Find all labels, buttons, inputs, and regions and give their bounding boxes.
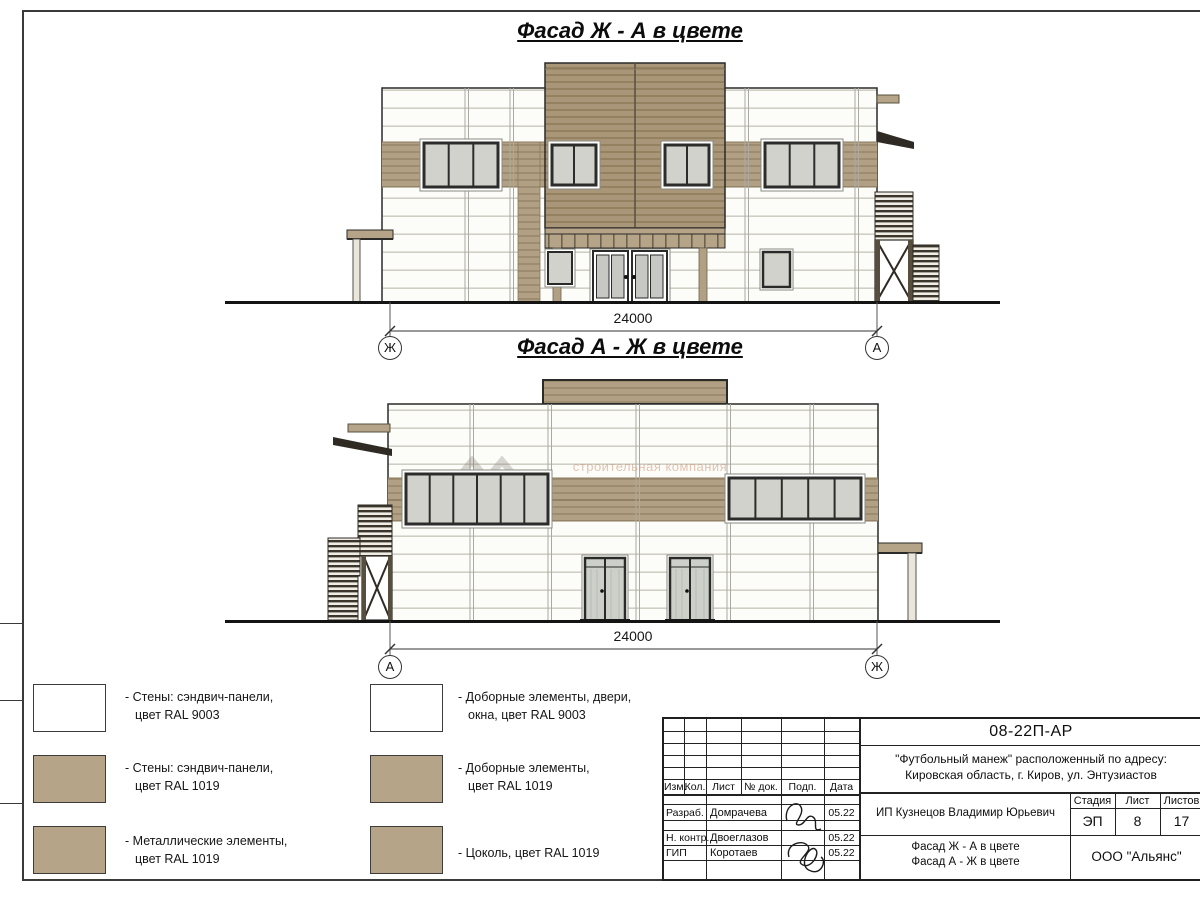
tb-col-kol: Кол.: [684, 781, 706, 793]
legend-item: - Стены: сэндвич-панели,цвет RAL 1019: [125, 760, 273, 795]
legend-swatch-ral1019: [33, 755, 106, 803]
legend-item: - Металлические элементы,цвет RAL 1019: [125, 833, 287, 868]
tb-stage-value: ЭП: [1070, 813, 1115, 829]
facade2-dimension: 24000: [573, 628, 693, 644]
facade2-drawing: [210, 375, 1010, 662]
tb-sheet-value: 8: [1115, 813, 1160, 829]
legend-swatch-ral9003: [33, 684, 106, 732]
legend-swatch-ral9003: [370, 684, 443, 732]
tb-role: Разраб.: [666, 807, 708, 819]
tb-name: Двоеглазов: [710, 832, 780, 844]
tb-col-izm: Изм.: [664, 781, 684, 793]
tb-name: Домрачева: [710, 807, 780, 819]
tb-sheets-label: Листов: [1160, 795, 1200, 807]
tb-project-line1: "Футбольный манеж" расположенный по адре…: [859, 752, 1200, 766]
facade1-title: Фасад Ж - А в цвете: [420, 18, 840, 44]
facade1-axis-left: Ж: [378, 336, 402, 360]
legend-item: - Стены: сэндвич-панели,цвет RAL 9003: [125, 689, 273, 724]
frame-margin-tick: [0, 623, 22, 624]
legend-item: - Цоколь, цвет RAL 1019: [458, 845, 599, 863]
facade1-axis-right: А: [865, 336, 889, 360]
watermark-text: строительная компания: [555, 459, 745, 474]
drawing-sheet: Фасад Ж - А в цвете Фасад А - Ж в цвете: [0, 0, 1200, 900]
facade2-title: Фасад А - Ж в цвете: [420, 334, 840, 360]
tb-name: Коротаев: [710, 847, 780, 859]
facade2-axis-right: Ж: [865, 655, 889, 679]
frame-left: [22, 10, 24, 881]
legend-swatch-ral1019: [370, 755, 443, 803]
tb-stage-label: Стадия: [1070, 795, 1115, 807]
frame-margin-tick: [0, 700, 22, 701]
frame-top: [22, 10, 1200, 12]
tb-role: Н. контр.: [666, 832, 708, 844]
facade2-axis-left: А: [378, 655, 402, 679]
tb-sheet-title-line1: Фасад Ж - А в цвете: [861, 841, 1070, 853]
signatures: [781, 795, 831, 879]
legend-item: - Доборные элементы, двери,окна, цвет RA…: [458, 689, 631, 724]
tb-col-podp: Подп.: [781, 781, 824, 793]
frame-margin-tick: [0, 803, 22, 804]
tb-project-line2: Кировская область, г. Киров, ул. Энтузиа…: [859, 768, 1200, 782]
facade1-dimension: 24000: [573, 310, 693, 326]
legend-swatch-ral1019: [370, 826, 443, 874]
legend-swatch-ral1019: [33, 826, 106, 874]
legend-item: - Доборные элементы,цвет RAL 1019: [458, 760, 590, 795]
tb-col-data: Дата: [824, 781, 859, 793]
tb-client: ИП Кузнецов Владимир Юрьевич: [861, 807, 1070, 819]
tb-col-doc: № док.: [741, 781, 781, 793]
title-block: Изм. Кол. Лист № док. Подп. Дата Разраб.…: [662, 717, 1200, 881]
tb-doc-number: 08-22П-АР: [859, 723, 1200, 741]
facade1-doors: [590, 249, 670, 302]
tb-col-list: Лист: [706, 781, 741, 793]
tb-company: ООО "Альянс": [1070, 849, 1200, 864]
tb-sheets-value: 17: [1160, 813, 1200, 829]
tb-role: ГИП: [666, 847, 708, 859]
tb-sheet-label: Лист: [1115, 795, 1160, 807]
tb-sheet-title-line2: Фасад А - Ж в цвете: [861, 856, 1070, 868]
